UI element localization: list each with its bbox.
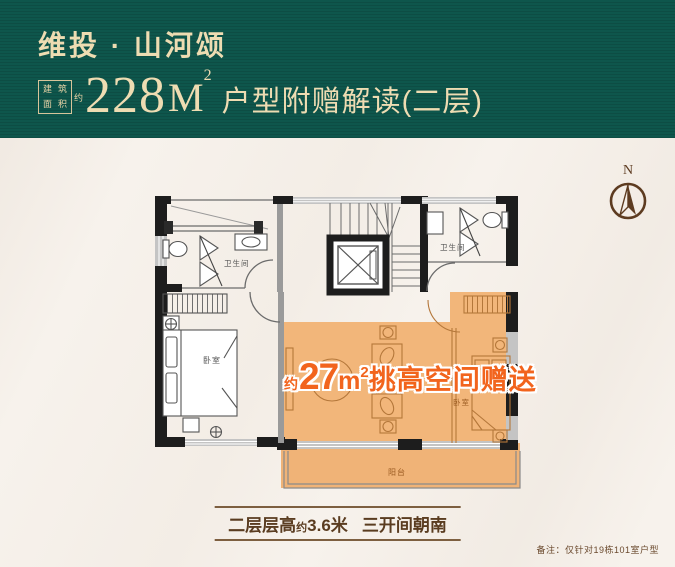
bedroom-left-furniture	[163, 294, 237, 438]
callout-number: 27	[299, 356, 338, 398]
caption-part2: 3.6米	[307, 511, 348, 536]
footnote-remark: 备注：仅针对19栋101室户型	[536, 543, 659, 556]
caption-part3: 三开间朝南	[362, 511, 447, 536]
callout-text: 挑高空间赠送	[369, 358, 537, 397]
bathroom-left-fixtures	[163, 234, 267, 286]
room-label-bedroom-left: 卧室	[203, 355, 221, 366]
room-label-balcony: 阳台	[388, 467, 406, 478]
gifted-space-callout: 约 27 m 2 挑高空间赠送	[284, 356, 537, 398]
floor-plan	[0, 0, 675, 567]
callout-superscript: 2	[360, 364, 368, 381]
callout-approx: 约	[284, 374, 298, 394]
floor-caption: 二层层高 约 3.6米 三开间朝南	[214, 506, 461, 541]
elevator	[330, 238, 386, 292]
callout-unit: m	[338, 367, 360, 396]
room-label-bedroom-right: 卧室	[453, 397, 470, 408]
room-label-bathroom-left: 卫生间	[224, 258, 250, 269]
room-label-bathroom-right: 卫生间	[440, 242, 466, 253]
caption-part1: 二层层高	[228, 511, 296, 536]
poster: 维投 · 山河颂 建 筑 面 积 约 228 M 2 户型附赠解读(二层) N	[0, 0, 675, 567]
caption-approx: 约	[296, 519, 307, 535]
interior-walls	[277, 204, 284, 443]
